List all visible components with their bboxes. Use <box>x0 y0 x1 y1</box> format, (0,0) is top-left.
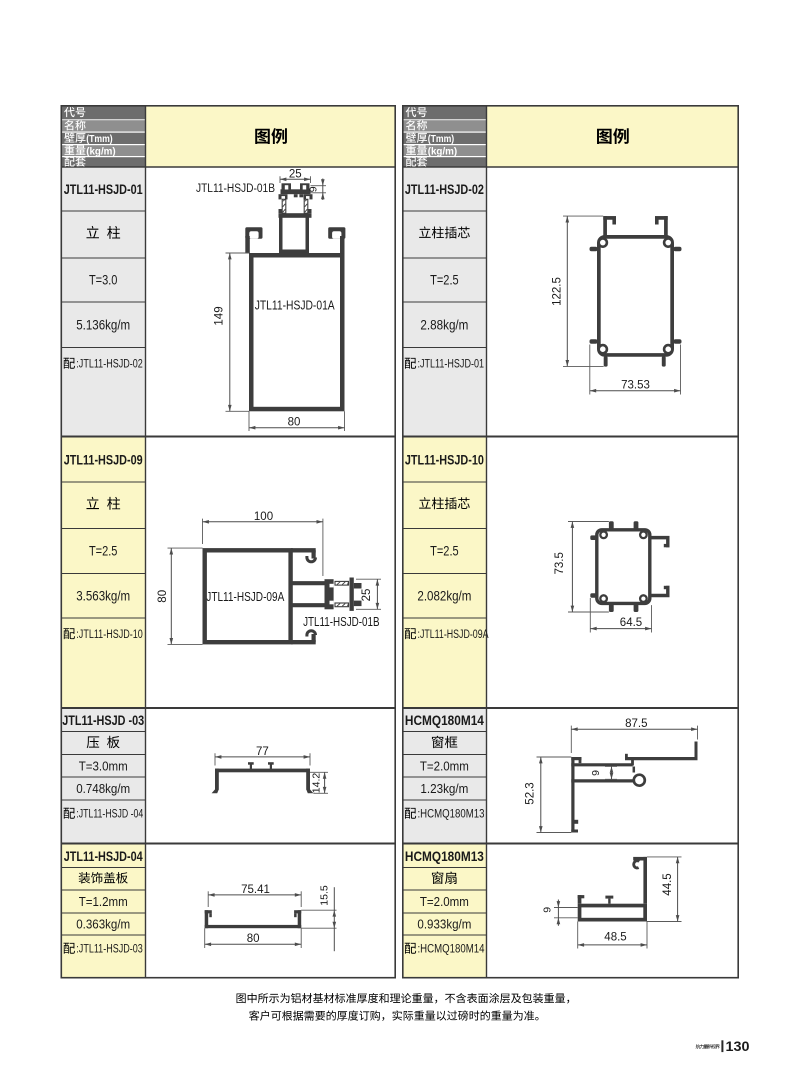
svg-text:80: 80 <box>157 590 169 603</box>
svg-text:T=2.0mm: T=2.0mm <box>420 759 469 774</box>
svg-text:T=2.0mm: T=2.0mm <box>420 894 469 909</box>
svg-text:(Tmm): (Tmm) <box>86 133 113 145</box>
svg-text::JTL11-HSJD-09A: :JTL11-HSJD-09A <box>418 627 490 641</box>
svg-text::JTL11-HSJD-01: :JTL11-HSJD-01 <box>418 356 485 370</box>
svg-text::JTL11-HSJD-03: :JTL11-HSJD-03 <box>76 941 143 955</box>
svg-text::HCMQ180M13: :HCMQ180M13 <box>418 806 485 820</box>
svg-text:T=2.5: T=2.5 <box>89 544 118 559</box>
svg-text:100: 100 <box>254 511 273 523</box>
svg-text:JTL11-HSJD-02: JTL11-HSJD-02 <box>405 182 484 197</box>
svg-text:77: 77 <box>256 746 269 758</box>
svg-text:5.136kg/m: 5.136kg/m <box>76 317 130 332</box>
svg-text:0.933kg/m: 0.933kg/m <box>417 917 471 932</box>
svg-text:(kg/m): (kg/m) <box>86 145 116 157</box>
svg-text:9: 9 <box>590 770 602 776</box>
svg-text:JTL11-HSJD-04: JTL11-HSJD-04 <box>64 849 143 864</box>
svg-text:25: 25 <box>361 589 373 602</box>
svg-text:JTL11-HSJD-01A: JTL11-HSJD-01A <box>255 298 336 312</box>
svg-text:T=2.5: T=2.5 <box>430 273 459 288</box>
svg-text:(kg/m): (kg/m) <box>428 145 458 157</box>
svg-text:52.3: 52.3 <box>524 782 536 804</box>
svg-text::JTL11-HSJD-10: :JTL11-HSJD-10 <box>76 627 143 641</box>
svg-text:64.5: 64.5 <box>620 617 642 629</box>
svg-text:80: 80 <box>288 416 301 428</box>
svg-text:80: 80 <box>247 933 260 945</box>
svg-text:14.2: 14.2 <box>310 773 322 794</box>
svg-text:75.41: 75.41 <box>241 884 270 896</box>
svg-text:9: 9 <box>308 186 320 192</box>
svg-text:48.5: 48.5 <box>604 931 626 943</box>
svg-text:15.5: 15.5 <box>318 885 330 906</box>
svg-text:2.88kg/m: 2.88kg/m <box>420 317 468 332</box>
svg-text:JTL11-HSJD-09: JTL11-HSJD-09 <box>64 453 143 468</box>
svg-text:0.363kg/m: 0.363kg/m <box>76 917 130 932</box>
svg-text::HCMQ180M14: :HCMQ180M14 <box>418 941 485 955</box>
svg-text:T=1.2mm: T=1.2mm <box>79 894 128 909</box>
svg-text:T=2.5: T=2.5 <box>430 544 459 559</box>
svg-text:JTL11-HSJD-01B: JTL11-HSJD-01B <box>196 181 275 195</box>
svg-text:3.563kg/m: 3.563kg/m <box>76 589 130 604</box>
svg-text:JTL11-HSJD-10: JTL11-HSJD-10 <box>405 453 484 468</box>
svg-text::JTL11-HSJD -04: :JTL11-HSJD -04 <box>76 806 143 820</box>
svg-text:149: 149 <box>214 306 226 325</box>
svg-text:JTL11-HSJD-09A: JTL11-HSJD-09A <box>206 590 285 604</box>
svg-text:122.5: 122.5 <box>551 277 563 306</box>
svg-text:JTL11-HSJD -03: JTL11-HSJD -03 <box>62 713 144 728</box>
svg-text:87.5: 87.5 <box>625 718 647 730</box>
svg-text::JTL11-HSJD-02: :JTL11-HSJD-02 <box>76 356 143 370</box>
svg-text:(Tmm): (Tmm) <box>428 133 455 145</box>
svg-text:JTL11-HSJD-01B: JTL11-HSJD-01B <box>303 615 380 629</box>
svg-text:HCMQ180M13: HCMQ180M13 <box>405 849 484 864</box>
svg-text:25: 25 <box>289 168 302 180</box>
svg-text:T=3.0mm: T=3.0mm <box>79 759 128 774</box>
svg-text:T=3.0: T=3.0 <box>89 273 118 288</box>
svg-text:73.5: 73.5 <box>554 552 566 574</box>
svg-text:HCMQ180M14: HCMQ180M14 <box>405 713 484 728</box>
svg-text:JTL11-HSJD-01: JTL11-HSJD-01 <box>64 182 143 197</box>
svg-text:73.53: 73.53 <box>621 380 650 392</box>
svg-text:0.748kg/m: 0.748kg/m <box>76 781 130 796</box>
svg-text:2.082kg/m: 2.082kg/m <box>417 589 471 604</box>
svg-text:44.5: 44.5 <box>662 873 674 895</box>
svg-text:1.23kg/m: 1.23kg/m <box>420 781 468 796</box>
svg-text:130: 130 <box>726 1039 750 1055</box>
svg-text:9: 9 <box>542 907 554 913</box>
